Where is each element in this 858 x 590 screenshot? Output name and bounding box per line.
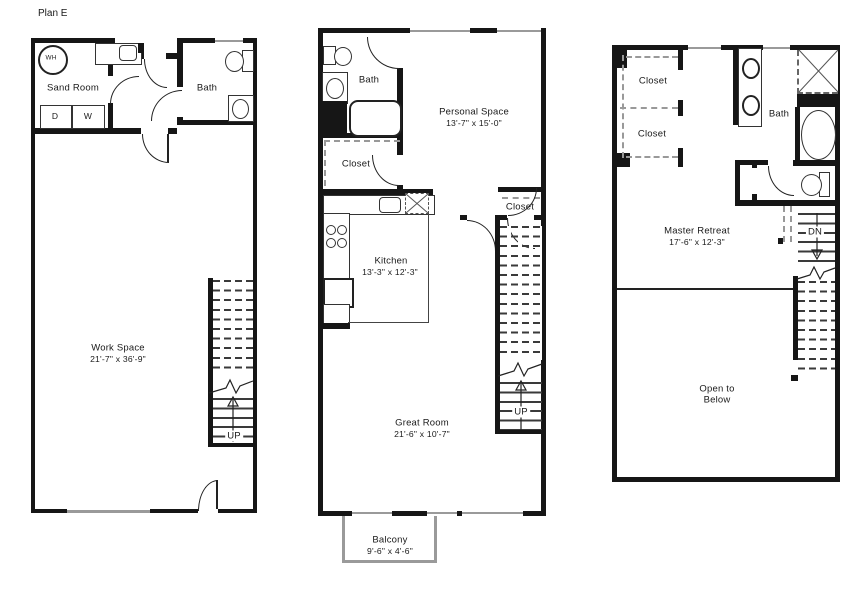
wall-segment [678,100,683,116]
sink [326,78,344,99]
up-label: UP [512,407,530,418]
toilet [801,174,822,196]
wall-segment [392,511,427,516]
personal-space-dims: 13'-7" x 15'-0" [446,118,502,128]
water-heater-label: WH [45,55,56,62]
page-title: Plan E [38,8,67,19]
stair-wall [793,276,798,360]
closet-label: Closet [638,129,666,140]
wall-segment [168,128,177,134]
dn-label: DN [806,227,824,238]
wall-segment [150,509,198,513]
balcony-dims: 9'-6" x 4'-6" [367,546,413,556]
stair-break-and-arrow [495,355,547,435]
wall-segment [612,477,840,482]
work-space-label: Work Space [91,343,145,354]
window [497,30,543,32]
wall-segment [31,509,67,513]
wall-segment [166,53,177,59]
sink [742,95,760,116]
door-jamb [752,162,757,168]
door-arc [367,37,399,69]
toilet [334,47,352,66]
burner [337,225,347,235]
window [763,47,790,49]
personal-space-label: Personal Space [439,107,509,118]
wall-segment [470,28,497,33]
closet-shelf-dashes [620,107,678,109]
door-arc [467,220,496,251]
open-to-below-label2: Below [704,395,731,406]
kitchen-floor-line [428,213,429,323]
window [688,47,721,49]
door-arc [142,134,169,163]
up-label: UP [225,431,243,442]
burner [326,225,336,235]
wall-block [797,94,840,107]
wall-block [612,50,627,68]
shower [797,50,838,94]
closet-label: Closet [639,76,667,87]
wall-segment [523,511,546,516]
wall-segment [678,50,683,70]
stair-rail-dashes [783,206,785,242]
window [462,512,523,514]
closet-label: Closet [342,159,370,170]
stairs-up-treads [500,226,542,360]
window [215,40,243,42]
balcony-wall [342,560,437,563]
stair-wall [791,375,798,381]
kitchen-dims: 13'-3" x 12'-3" [362,267,418,277]
door-arc [151,90,182,121]
wall-segment [318,511,352,516]
master-retreat-dims: 17'-6" x 12'-3" [669,237,725,247]
window [427,512,457,514]
wall-segment [108,103,113,134]
closet-shelf-dashes [626,156,678,158]
door-arc [198,480,218,511]
master-retreat-label: Master Retreat [664,226,730,237]
kitchen-sink [379,197,401,213]
counter [323,304,350,325]
great-room-dims: 21'-6" x 10'-7" [394,429,450,439]
balcony-wall [342,516,345,562]
wall-block [322,101,347,135]
work-space-dims: 21'-7" x 36'-9" [90,354,146,364]
burner [326,238,336,248]
railing [617,288,793,290]
dishwasher [405,193,429,214]
wall-segment [678,148,683,167]
stairs-down-treads [798,281,835,377]
window [410,30,470,32]
bath-label: Bath [769,109,789,120]
bathtub [349,100,402,137]
closet-label: Closet [506,202,534,213]
balcony-wall [434,516,437,562]
kitchen-floor-line [348,322,429,323]
wall-segment [534,215,546,220]
garage-door-line [67,510,150,513]
dryer-label: D [52,111,58,121]
great-room-label: Great Room [395,418,449,429]
bath-label: Bath [359,75,379,86]
door-arc [768,166,794,196]
wall-segment [218,509,257,513]
bathtub [801,110,836,160]
balcony-label: Balcony [372,535,407,546]
wall-segment [318,28,410,33]
wall-segment [177,38,183,87]
sink [232,99,249,119]
stair-break-and-arrow [790,205,840,285]
wall-segment [612,45,617,482]
wall-segment [460,215,467,220]
kitchen-label: Kitchen [374,256,407,267]
wall-segment [793,160,840,166]
balcony-door-line [352,512,392,514]
sand-room-label: Sand Room [47,83,99,94]
wall-segment [318,323,350,329]
wall-segment [138,43,144,53]
wall-segment [778,238,783,244]
door-arc [144,59,167,88]
sink [119,45,137,61]
wall-segment [795,107,800,162]
wall-segment [31,38,35,513]
burner [337,238,347,248]
closet-shelf-dashes [626,56,678,58]
sink [742,58,760,79]
floor-plan-sheet: Plan E WH Sand Room [0,0,858,590]
toilet [225,51,244,72]
open-to-below-label: Open to [699,384,734,395]
door-arc [110,76,139,104]
bath-label: Bath [197,83,217,94]
washer-label: W [84,111,92,121]
